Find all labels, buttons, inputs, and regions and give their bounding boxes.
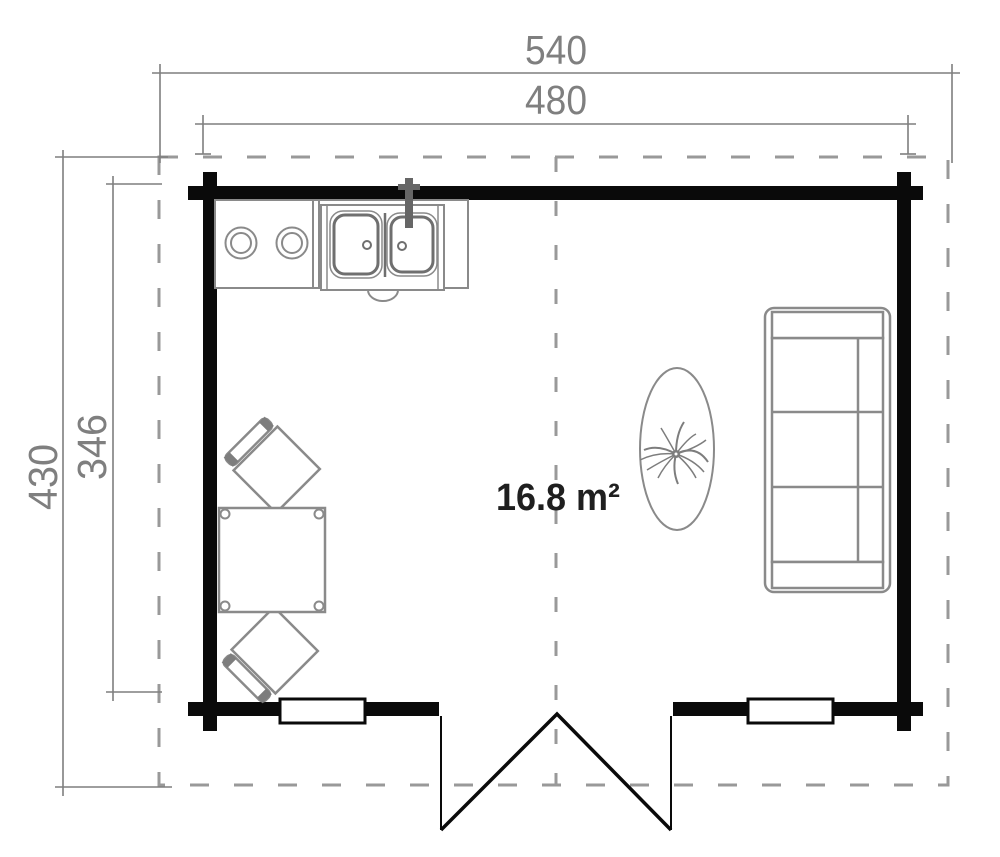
plant-on-oval-table [640,368,714,530]
sofa-armrest-top [772,312,883,338]
table-leg [315,510,324,519]
table-leg [221,510,230,519]
dimension-label-top-outer: 540 [525,27,587,73]
window-right [748,699,833,723]
dimension-label-left-inner: 346 [69,414,115,480]
table-leg [315,602,324,611]
burner-right-inner [282,233,302,253]
sink-drain-right [398,242,406,250]
sofa-armrest-bottom [772,562,883,588]
table-top [219,508,325,612]
window-left [280,699,365,723]
dimension-top-inner: 480 [195,77,916,154]
dimension-label-top-inner: 480 [525,77,587,123]
sink-cabinet-handle [368,290,398,301]
sink-drain-left [363,241,371,249]
floor-plan-canvas: 540 480 430 346 [0,0,1000,857]
faucet-handle [398,184,420,190]
wall-right [897,172,911,731]
dimension-left-inner: 346 [69,176,162,701]
wall-top [188,186,923,200]
burner-left-inner [231,233,251,253]
three-seat-sofa [765,308,890,592]
dimension-label-left-outer: 430 [20,444,66,510]
area-label: 16.8 m² [496,477,620,519]
chair-bottom [220,607,318,705]
table-leg [221,602,230,611]
chair-top [222,415,320,513]
floor-plan-drawing: 540 480 430 346 [0,0,1000,857]
dining-table [219,508,325,612]
sofa-seat-area [772,338,883,562]
